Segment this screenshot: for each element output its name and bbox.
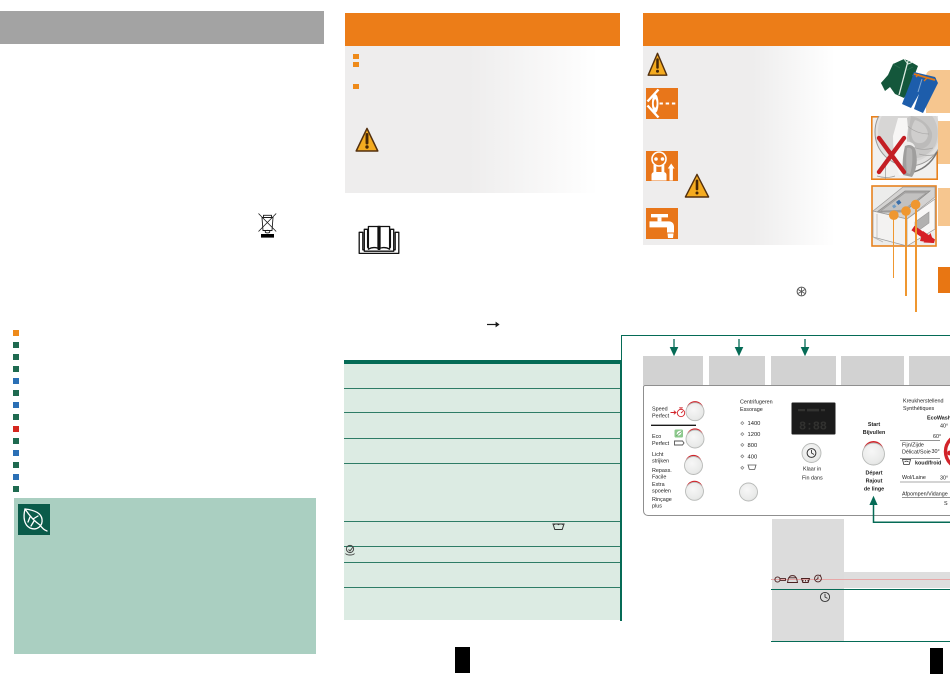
svg-text:Wol/Laine: Wol/Laine [902,475,926,481]
svg-text:Essorage: Essorage [740,407,763,413]
svg-text:EcoWash: EcoWash [927,415,950,421]
svg-text:Licht: Licht [652,452,664,458]
svg-text:400: 400 [748,454,758,460]
svg-text:8:88: 8:88 [799,419,827,433]
svg-text:60°: 60° [933,434,941,440]
svg-text:800: 800 [748,443,758,449]
svg-text:Repass.: Repass. [652,468,672,474]
svg-text:Bijvullen: Bijvullen [863,430,885,436]
svg-text:Perfect: Perfect [652,413,670,419]
svg-text:30°: 30° [932,449,940,455]
svg-text:Fijn/Zijde: Fijn/Zijde [902,442,924,448]
svg-text:1200: 1200 [748,432,761,438]
svg-text:Kreukherstellend: Kreukherstellend [903,398,943,404]
svg-text:Start: Start [868,422,880,428]
svg-text:Départ: Départ [865,470,882,476]
svg-text:40°: 40° [940,423,948,429]
svg-text:spoelen: spoelen [652,488,671,494]
svg-text:de linge: de linge [864,486,884,492]
svg-text:plus: plus [652,503,662,509]
svg-text:Facile: Facile [652,474,666,480]
svg-text:Rinçage: Rinçage [652,497,672,503]
svg-text:30°: 30° [940,475,948,481]
svg-text:Rajout: Rajout [866,478,883,484]
svg-text:Extra: Extra [652,482,665,488]
svg-text:Speed: Speed [652,406,668,412]
svg-text:1400: 1400 [748,421,761,427]
svg-text:Synthétiques: Synthétiques [903,406,934,412]
svg-text:Délicat/Soie: Délicat/Soie [902,449,931,455]
svg-text:Klaar in: Klaar in [803,466,821,472]
svg-text:strijken: strijken [652,458,669,464]
svg-text:Centrifugeren: Centrifugeren [740,399,773,405]
svg-text:Eco: Eco [652,434,661,440]
svg-text:koud/froid: koud/froid [915,460,941,466]
svg-text:Fin dans: Fin dans [802,475,823,481]
svg-text:Perfect: Perfect [652,441,670,447]
